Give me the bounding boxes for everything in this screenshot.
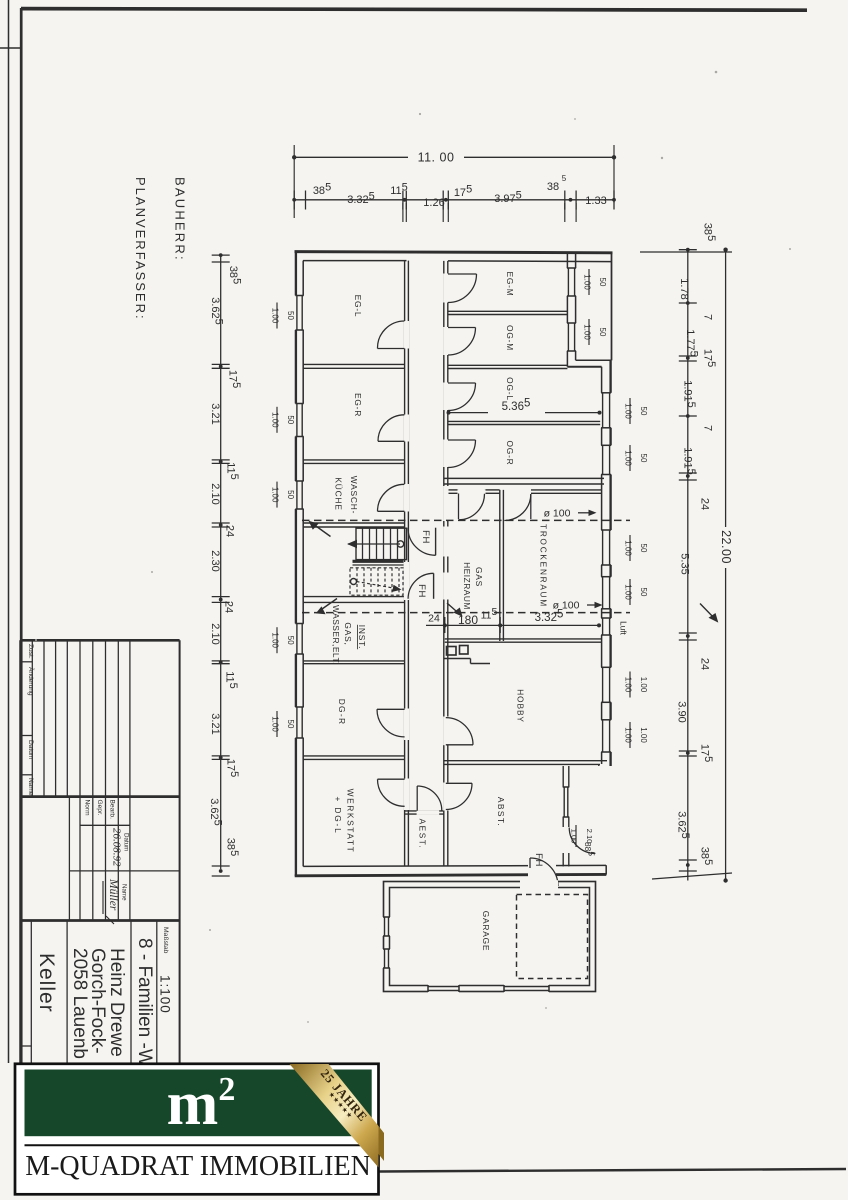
svg-text:175: 175 xyxy=(227,370,243,388)
svg-text:24: 24 xyxy=(699,498,711,510)
svg-text:50: 50 xyxy=(598,278,607,287)
svg-text:1.33: 1.33 xyxy=(585,195,606,207)
svg-text:Norm: Norm xyxy=(84,800,91,817)
svg-text:TROCKENRAUM: TROCKENRAUM xyxy=(539,524,548,608)
svg-text:885: 885 xyxy=(583,842,597,856)
svg-text:1.00: 1.00 xyxy=(639,727,648,743)
svg-text:11. 00: 11. 00 xyxy=(418,151,455,165)
svg-text:115: 115 xyxy=(225,462,241,480)
svg-text:1.915: 1.915 xyxy=(682,447,698,475)
svg-text:50: 50 xyxy=(639,454,648,463)
svg-text:HOBBY: HOBBY xyxy=(515,689,525,723)
svg-text:Keller: Keller xyxy=(35,953,58,1013)
svg-text:Luft: Luft xyxy=(619,621,628,635)
svg-text:FH: FH xyxy=(420,530,431,544)
svg-text:1.00: 1.00 xyxy=(582,324,591,340)
svg-text:1.00: 1.00 xyxy=(623,403,632,419)
svg-text:+: + xyxy=(333,797,343,802)
svg-text:Bearb.: Bearb. xyxy=(109,800,116,820)
svg-text:50: 50 xyxy=(286,311,295,320)
svg-text:M-QUADRAT IMMOBILIEN: M-QUADRAT IMMOBILIEN xyxy=(25,1151,371,1182)
svg-text:385: 385 xyxy=(702,223,718,241)
svg-text:115: 115 xyxy=(224,671,240,689)
svg-text:8 - Familien -W: 8 - Familien -W xyxy=(134,938,155,1067)
svg-text:Name: Name xyxy=(121,884,128,901)
svg-text:1.00: 1.00 xyxy=(270,632,279,648)
svg-text:1.00: 1.00 xyxy=(270,308,279,324)
svg-text:50: 50 xyxy=(286,720,295,729)
svg-text:1.00: 1.00 xyxy=(270,487,279,503)
svg-text:115: 115 xyxy=(481,606,498,622)
svg-text:1.00: 1.00 xyxy=(623,727,632,743)
svg-text:GAS: GAS xyxy=(474,567,484,587)
svg-text:Änderung: Änderung xyxy=(27,667,35,696)
svg-text:24: 24 xyxy=(699,658,711,670)
svg-text:INST.: INST. xyxy=(357,625,367,649)
svg-text:3.21: 3.21 xyxy=(209,403,221,424)
svg-text:3.625: 3.625 xyxy=(676,811,692,839)
svg-text:24: 24 xyxy=(428,613,440,625)
svg-text:Gepr.: Gepr. xyxy=(96,800,103,816)
svg-text:3.625: 3.625 xyxy=(209,297,225,325)
svg-text:2058 Lauenb: 2058 Lauenb xyxy=(69,948,90,1059)
svg-text:FH: FH xyxy=(533,853,544,867)
svg-text:1.26: 1.26 xyxy=(423,197,444,209)
svg-text:385: 385 xyxy=(699,847,715,865)
svg-text:DG-R: DG-R xyxy=(337,699,347,726)
svg-text:38: 38 xyxy=(547,181,559,193)
svg-text:1.00: 1.00 xyxy=(623,450,632,466)
svg-text:385: 385 xyxy=(313,182,331,198)
svg-text:Zust.: Zust. xyxy=(27,644,34,659)
svg-text:1.00: 1.00 xyxy=(639,677,648,693)
svg-text:24: 24 xyxy=(224,525,236,537)
svg-text:50: 50 xyxy=(286,490,295,499)
svg-text:KÜCHE: KÜCHE xyxy=(334,477,344,510)
svg-text:DG-L: DG-L xyxy=(333,807,343,834)
svg-text:1.00: 1.00 xyxy=(623,540,632,556)
svg-text:Datum: Datum xyxy=(27,740,34,760)
svg-text:50: 50 xyxy=(286,415,295,424)
svg-text:50: 50 xyxy=(639,544,648,553)
svg-text:1.00: 1.00 xyxy=(270,716,279,732)
svg-text:3.625: 3.625 xyxy=(208,798,224,826)
svg-text:1.00: 1.00 xyxy=(270,412,279,428)
svg-text:175: 175 xyxy=(702,349,718,367)
svg-text:ø 100: ø 100 xyxy=(544,508,571,520)
svg-text:1.915: 1.915 xyxy=(682,380,698,408)
svg-text:3.325: 3.325 xyxy=(535,609,564,625)
svg-text:GARAGE: GARAGE xyxy=(481,911,491,952)
svg-text:385: 385 xyxy=(227,266,243,284)
svg-text:OG-M: OG-M xyxy=(505,325,515,351)
svg-text:EG-L: EG-L xyxy=(353,295,363,318)
svg-text:180: 180 xyxy=(458,613,478,627)
svg-text:2.10: 2.10 xyxy=(209,483,221,504)
svg-text:AEST.: AEST. xyxy=(418,819,427,850)
svg-text:7: 7 xyxy=(702,425,714,431)
svg-text:1.00: 1.00 xyxy=(569,829,578,844)
svg-text:WERKSTATT: WERKSTATT xyxy=(346,789,356,854)
svg-text:WASCH-: WASCH- xyxy=(349,476,359,514)
svg-text:7: 7 xyxy=(702,314,714,320)
svg-text:PLANVERFASSER:: PLANVERFASSER: xyxy=(133,177,148,321)
svg-text:1.775: 1.775 xyxy=(684,329,700,357)
svg-text:1.78: 1.78 xyxy=(678,278,690,299)
svg-text:2.10: 2.10 xyxy=(209,623,221,644)
svg-text:1.00: 1.00 xyxy=(623,677,632,693)
svg-text:EG-R: EG-R xyxy=(353,393,363,417)
svg-text:50: 50 xyxy=(598,328,607,337)
svg-text:WASSER,ELT.: WASSER,ELT. xyxy=(331,605,341,665)
svg-text:385: 385 xyxy=(225,838,241,856)
svg-text:5.35: 5.35 xyxy=(679,553,691,574)
svg-text:FH: FH xyxy=(416,584,427,598)
svg-text:3.325: 3.325 xyxy=(347,191,375,207)
svg-text:Name: Name xyxy=(27,778,34,796)
svg-text:Müller: Müller xyxy=(107,878,119,911)
svg-text:50: 50 xyxy=(286,636,295,645)
svg-text:3.90: 3.90 xyxy=(676,701,688,722)
svg-text:1.00: 1.00 xyxy=(582,274,591,290)
svg-text:ABST.: ABST. xyxy=(496,797,506,827)
svg-text:175: 175 xyxy=(454,184,472,200)
svg-text:OG-R: OG-R xyxy=(505,440,515,465)
svg-text:EG-M: EG-M xyxy=(505,271,515,296)
svg-text:2.30: 2.30 xyxy=(209,550,221,571)
svg-text:24: 24 xyxy=(223,601,235,613)
svg-text:BAUHERR:: BAUHERR: xyxy=(173,177,188,262)
svg-text:Maßstab: Maßstab xyxy=(162,927,169,954)
svg-text:OG-L: OG-L xyxy=(505,377,515,401)
svg-text:26.08.92: 26.08.92 xyxy=(111,828,123,867)
svg-text:175: 175 xyxy=(225,759,241,777)
svg-text:5: 5 xyxy=(562,174,567,183)
svg-text:Datum: Datum xyxy=(123,833,130,851)
svg-text:3.21: 3.21 xyxy=(209,713,221,734)
svg-text:GAS,: GAS, xyxy=(343,622,353,645)
svg-text:175: 175 xyxy=(699,744,715,762)
svg-text:1:100: 1:100 xyxy=(158,975,173,1014)
svg-text:115: 115 xyxy=(390,182,408,198)
svg-text:50: 50 xyxy=(639,588,648,597)
svg-text:1.00: 1.00 xyxy=(623,584,632,600)
svg-text:22.00: 22.00 xyxy=(719,530,733,564)
svg-text:Heinz Drewe: Heinz Drewe xyxy=(106,948,127,1057)
svg-text:HEIZRAUM: HEIZRAUM xyxy=(462,562,472,610)
svg-text:50: 50 xyxy=(639,407,648,416)
svg-text:3.975: 3.975 xyxy=(494,190,522,206)
